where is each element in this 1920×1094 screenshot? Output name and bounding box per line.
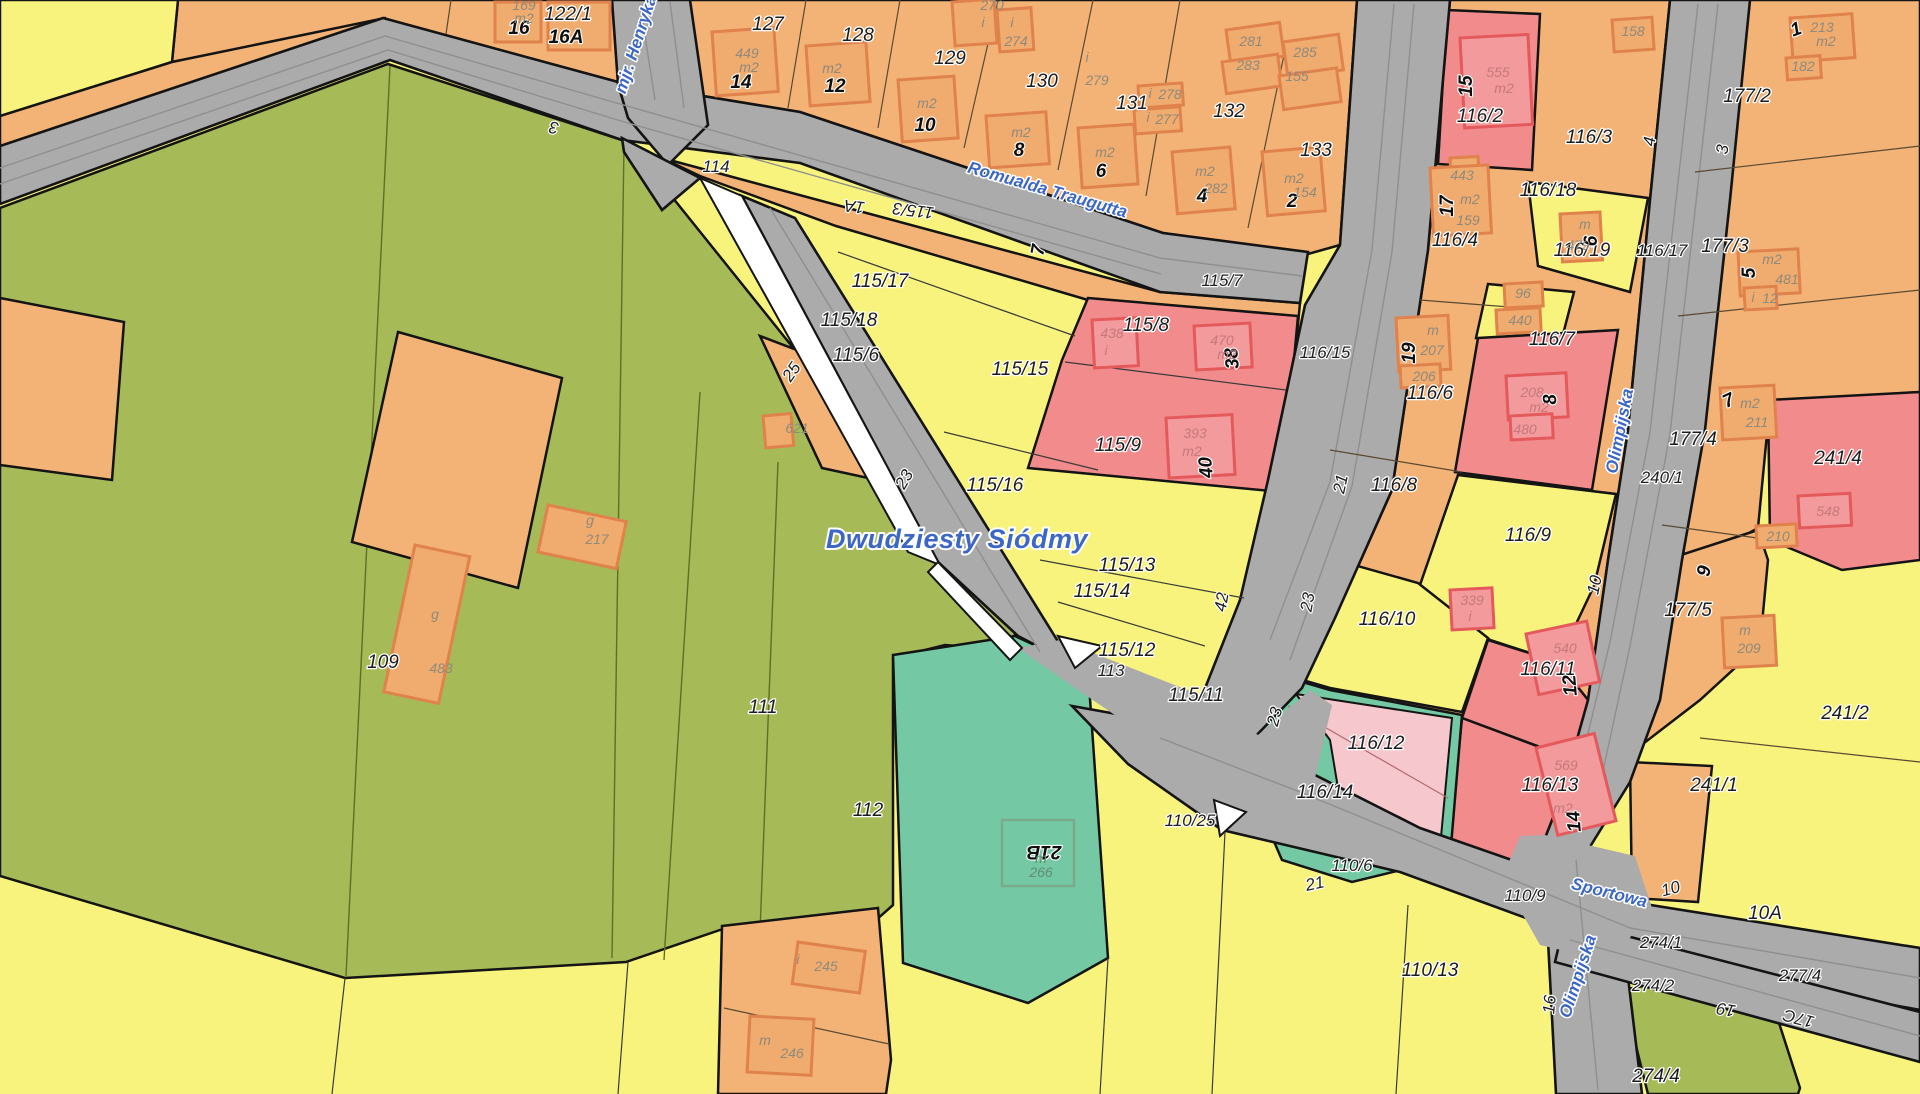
road-numbers-label: 110/9 <box>1504 886 1546 905</box>
addresses-label: 15 <box>1456 75 1477 97</box>
building-labels-label: 621 <box>785 420 808 436</box>
addresses-label: 6 <box>1096 161 1107 182</box>
parcel-numbers-label: 131 <box>1116 93 1148 114</box>
parcel-numbers-label: 130 <box>1026 71 1058 92</box>
parcel-numbers-label: 115/15 <box>992 359 1049 380</box>
building-labels-label: g <box>431 606 439 622</box>
building-labels-label: 443 <box>1450 167 1474 183</box>
road-numbers-label: 21 <box>1303 872 1326 895</box>
parcel-numbers-label: 116/14 <box>1297 782 1354 803</box>
road-numbers-label: 23 <box>1296 591 1318 614</box>
road-numbers-label: 114 <box>702 157 729 176</box>
building-labels-label: 245 <box>813 958 838 974</box>
parcel-numbers-label: 115/9 <box>1095 435 1142 456</box>
road-numbers-label: 115/7 <box>1201 271 1243 290</box>
parcel-numbers-label: 116/13 <box>1522 775 1579 796</box>
addresses-label: 40 <box>1195 456 1218 480</box>
parcel-numbers-label: 116/7 <box>1529 329 1577 350</box>
building-labels-label: g <box>586 512 594 528</box>
road-numbers-label: 274/2 <box>1631 976 1675 995</box>
building-labels-red-label: 480 <box>1513 421 1537 437</box>
addresses-label: 17 <box>1437 194 1458 217</box>
building-labels-label: m2 <box>1011 124 1031 140</box>
building-labels-label: 483 <box>429 660 453 676</box>
building-labels-red-label: 555 <box>1486 64 1510 80</box>
parcel-numbers-label: 177/3 <box>1701 236 1749 257</box>
building-labels-red-label: 540 <box>1553 640 1577 656</box>
parcel-teal-large[interactable] <box>893 636 1108 1003</box>
parcel-numbers-label: 116/18 <box>1520 180 1577 201</box>
parcel-numbers-label: 133 <box>1300 140 1332 161</box>
parcel-numbers-label: 112 <box>853 800 884 821</box>
building-labels-red-label: m2 <box>1529 399 1549 415</box>
building-labels-label: m2 <box>514 10 534 26</box>
parcel-numbers-label: 110/13 <box>1402 960 1459 981</box>
building-labels-red-label: m2 <box>1494 80 1514 96</box>
addresses-label: 19 <box>1399 342 1420 364</box>
building-labels-label: 481 <box>1775 271 1798 287</box>
building-labels-label: 211 <box>1745 414 1768 430</box>
parcel-numbers-label: 116/8 <box>1371 475 1418 496</box>
building-labels-red-label: 339 <box>1460 592 1484 608</box>
road-numbers-label: 110/25 <box>1165 811 1216 830</box>
building-labels-label: m2 <box>822 60 842 76</box>
building-labels-label: 440 <box>1508 312 1532 328</box>
road-numbers-label: 110/6 <box>1331 856 1373 875</box>
parcel-numbers-label: 116/6 <box>1407 383 1454 404</box>
building-labels-label: 282 <box>1203 180 1228 196</box>
building-labels-red-label: m2 <box>1553 800 1573 816</box>
parcel-numbers-label: 115/12 <box>1099 640 1156 661</box>
parcel-numbers-label: 109 <box>367 652 399 673</box>
parcel-numbers-label: 241/4 <box>1813 448 1862 469</box>
parcel-numbers-label: 115/16 <box>967 475 1024 496</box>
building-labels-label: m2 <box>1740 395 1760 411</box>
building-labels-label: 207 <box>1419 342 1445 358</box>
parcel-numbers-label: 115/18 <box>821 310 878 331</box>
parcel-numbers-label: 116/10 <box>1359 609 1416 630</box>
road-numbers-label: 19 <box>1715 998 1737 1020</box>
parcel-numbers-label: 116/9 <box>1505 525 1552 546</box>
building-labels-label: 158 <box>1621 23 1645 39</box>
building-labels-label: m <box>759 1032 771 1048</box>
parcel-numbers-label: 115/13 <box>1099 555 1156 576</box>
building-labels-label: m2 <box>1095 144 1115 160</box>
building-labels-label: m2 <box>1460 191 1480 207</box>
parcel-numbers-label: 177/2 <box>1723 86 1771 107</box>
addresses-label: 8 <box>1014 140 1025 161</box>
parcel-numbers-label: 115/17 <box>852 271 910 292</box>
parcel-numbers-label: 115/11 <box>1168 685 1223 706</box>
road-numbers-label: 116/17 <box>1637 241 1688 260</box>
building-labels-label: m2 <box>1762 251 1782 267</box>
building-labels-label: m2 <box>1816 33 1836 49</box>
road-numbers-label: 277/4 <box>1778 966 1822 985</box>
building-labels-label: 270 <box>979 0 1004 13</box>
building-labels-red-label: 569 <box>1554 757 1578 773</box>
building-labels-label: 206 <box>1411 368 1436 384</box>
building-labels-red-label: m2 <box>1182 443 1202 459</box>
building-labels-label: 285 <box>1292 44 1317 60</box>
building-labels-label: 479 <box>1566 237 1590 253</box>
parcel-numbers-label: 116/2 <box>1457 106 1504 127</box>
parcel-numbers-label: 177/4 <box>1669 429 1717 450</box>
parcel-numbers-label: 115/8 <box>1123 315 1170 336</box>
road-numbers-label: 21 <box>1329 473 1352 496</box>
parcel-numbers-label: 116/12 <box>1348 733 1405 754</box>
addresses-label: 5 <box>1739 267 1760 278</box>
parcel-numbers-label: 127 <box>752 14 785 35</box>
building-labels-red-label: 438 <box>1100 325 1124 341</box>
district-label: Dwudziesty Siódmy <box>826 524 1090 554</box>
building-labels-label: m2 <box>739 59 759 75</box>
addresses-label: 16A <box>549 27 584 48</box>
parcel-numbers-label: 122/1 <box>544 4 592 25</box>
building-labels-red-label: 548 <box>1816 503 1840 519</box>
building-labels-label: m <box>1427 322 1439 338</box>
building-labels-label: 12 <box>1762 290 1778 306</box>
parcel-numbers-label: 129 <box>934 48 966 69</box>
building-labels-label: 274 <box>1003 33 1028 49</box>
parcel-numbers-label: 274/4 <box>1631 1066 1680 1087</box>
building-labels-label: 209 <box>1736 640 1761 656</box>
parcel-numbers-label: 241/1 <box>1689 775 1738 796</box>
building-labels-label: 279 <box>1084 72 1109 88</box>
parcel-numbers-label: 115/6 <box>833 345 880 366</box>
building-labels-label: 210 <box>1765 528 1790 544</box>
building-labels-label: m2 <box>1195 163 1215 179</box>
parcel-numbers-label: 10A <box>1748 903 1782 924</box>
building-labels-label: m <box>1579 216 1591 232</box>
addresses-label: 10 <box>914 115 936 136</box>
parcel-numbers-label: 111 <box>749 697 778 718</box>
building-labels-teal-label: 266 <box>1028 864 1053 880</box>
building-labels-label: m2 <box>917 95 937 111</box>
road-numbers-label: 1A <box>843 196 866 217</box>
building-labels-label: 182 <box>1791 58 1815 74</box>
parcel-numbers-label: 132 <box>1213 101 1245 122</box>
road-numbers-label: 42 <box>1211 591 1233 613</box>
building-labels-red-label: 208 <box>1519 384 1544 400</box>
road-numbers-label: 116/15 <box>1300 343 1351 362</box>
parcel-numbers-label: 116/4 <box>1432 230 1478 251</box>
building-labels-label: 277 <box>1154 111 1180 127</box>
addresses-label: 14 <box>730 72 752 93</box>
parcel-numbers-label: 241/2 <box>1820 703 1869 724</box>
parcel-numbers-label: 115/14 <box>1074 581 1131 602</box>
parcel-numbers-label: 116/3 <box>1566 127 1613 148</box>
building-labels-label: 96 <box>1515 285 1531 301</box>
road-numbers-label: 240/1 <box>1640 468 1684 487</box>
parcel-left-orange[interactable] <box>0 298 124 480</box>
addresses-label: 12 <box>1559 674 1582 697</box>
building-labels-label: 159 <box>1456 212 1480 228</box>
building-labels-red-label: 393 <box>1183 425 1207 441</box>
building-labels-label: 155 <box>1285 68 1309 84</box>
parcel-numbers-label: 177/5 <box>1664 600 1712 621</box>
road-numbers-label: 274/1 <box>1639 933 1683 952</box>
building-labels-label: 278 <box>1157 86 1182 102</box>
building-labels-label: 281 <box>1238 33 1262 49</box>
building-labels-red-label: m2 <box>1217 346 1237 362</box>
building-labels-label: 217 <box>584 531 610 547</box>
building-labels-label: 283 <box>1235 57 1260 73</box>
building-labels-label: 246 <box>779 1045 804 1061</box>
map-viewport[interactable]: 122/1127128129130131132133116/2116/3177/… <box>0 0 1920 1094</box>
road-numbers-label: 113 <box>1097 661 1125 680</box>
addresses-label: 12 <box>824 76 846 97</box>
building-labels-label: m <box>1739 622 1751 638</box>
parcel-numbers-label: 128 <box>842 25 874 46</box>
building-labels-label: 154 <box>1293 184 1317 200</box>
cadastral-map-canvas[interactable]: 122/1127128129130131132133116/2116/3177/… <box>0 0 1920 1094</box>
